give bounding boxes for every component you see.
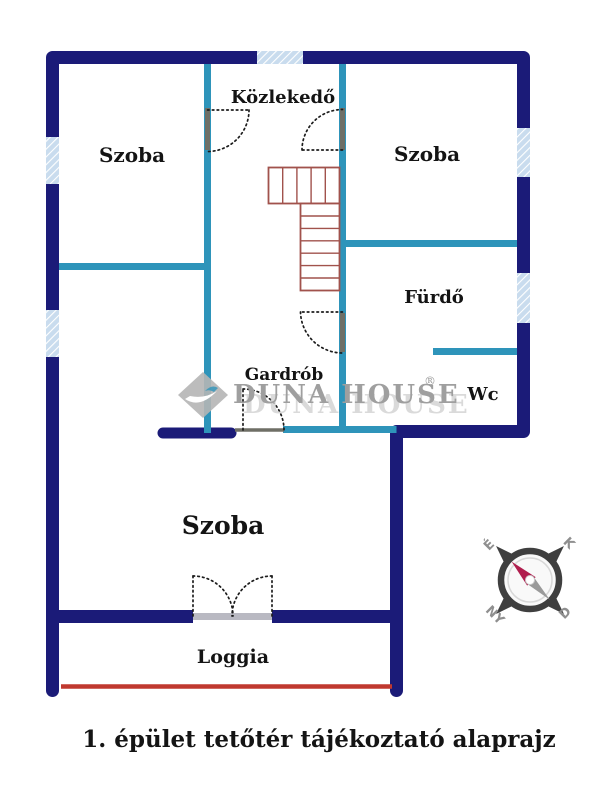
watermark-logo-diamond [178, 372, 228, 418]
window-left-upper [46, 137, 59, 184]
room-label-loggia: Loggia [197, 646, 269, 668]
compass-hub [526, 576, 535, 585]
door-kozlekedo-left [208, 108, 250, 152]
door-furdo [301, 312, 343, 353]
window-right-lower [517, 273, 530, 323]
watermark-registered-mark: ® [424, 374, 436, 388]
compass-label-north: É [480, 536, 498, 554]
room-label-szoba-bottom: Szoba [182, 511, 265, 540]
room-label-szoba-top-left: Szoba [99, 143, 165, 167]
stair-upper-run [269, 168, 340, 204]
plan-caption: 1. épület tetőtér tájékoztató alaprajz [82, 726, 555, 753]
door-kozlekedo-right [302, 108, 343, 150]
watermark: DUNA HOUSE DUNA HOUSE ® [178, 372, 470, 420]
window-left-lower [46, 310, 59, 357]
compass-rose: É K D NY [462, 512, 598, 648]
floorplan-document: DUNA HOUSE DUNA HOUSE ® Szoba Közlekedő … [0, 0, 600, 788]
floorplan-canvas: DUNA HOUSE DUNA HOUSE ® Szoba Közlekedő … [0, 0, 600, 788]
compass-label-east: K [560, 535, 578, 553]
room-label-szoba-top-right: Szoba [394, 142, 460, 166]
door-loggia-double [193, 576, 272, 617]
room-label-kozlekedo: Közlekedő [231, 87, 335, 108]
window-right-upper [517, 128, 530, 177]
room-label-wc: Wc [466, 384, 498, 405]
window-top-hallway [257, 51, 303, 64]
room-label-gardrob: Gardrób [245, 365, 324, 385]
staircase [269, 168, 340, 291]
room-label-furdo: Fürdő [404, 287, 464, 308]
